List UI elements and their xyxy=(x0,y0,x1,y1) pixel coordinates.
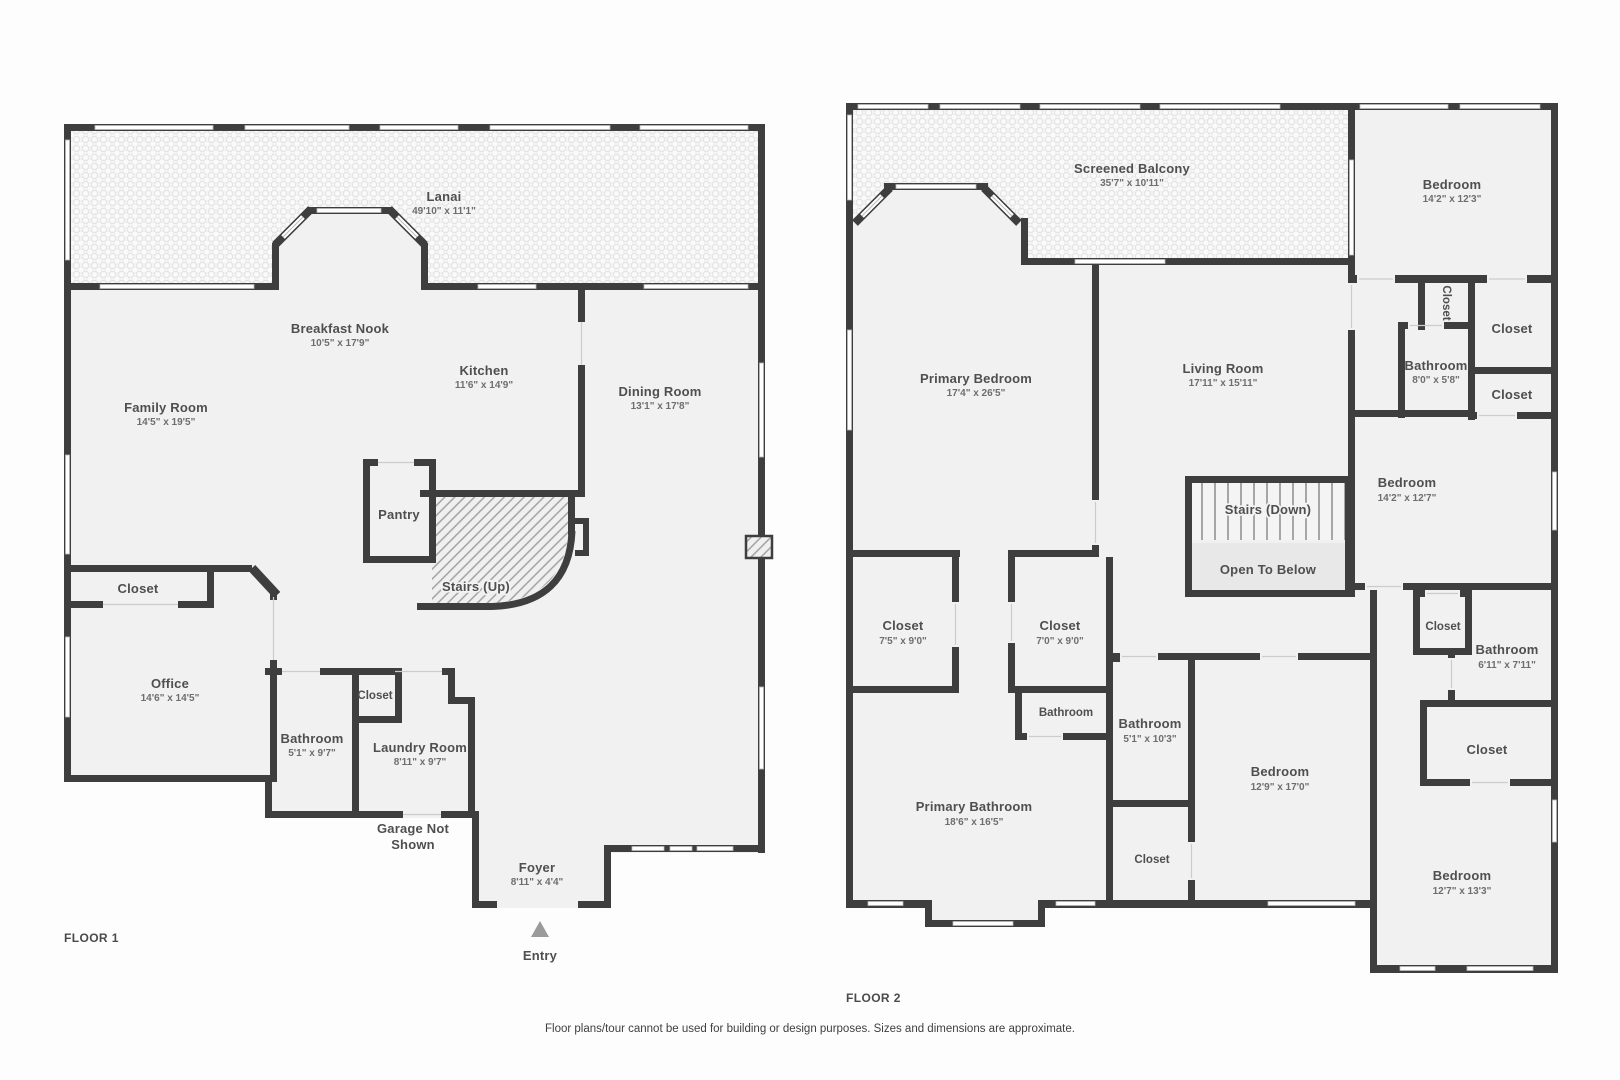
room-label-pantry: Pantry xyxy=(378,507,420,522)
room-label-primary-bedroom: Primary Bedroom xyxy=(920,371,1032,386)
room-dims-screened-balcony: 35'7" x 10'11" xyxy=(1100,178,1164,189)
room-label-bathroom1: Bathroom xyxy=(281,731,344,746)
garage-note-line1: Garage Not xyxy=(377,821,450,836)
room-dims-bedroom-tr: 14'2" x 12'3" xyxy=(1423,194,1482,205)
room-label-closet-lower-right: Closet xyxy=(1492,387,1533,402)
room-label-bedroom-bb: Bedroom xyxy=(1433,868,1491,883)
room-label-closet-large: Closet xyxy=(1467,742,1508,757)
room-label-primary-bathroom: Primary Bathroom xyxy=(916,799,1033,814)
room-label-closet-vertical: Closet xyxy=(1440,285,1452,320)
room-dims-kitchen: 11'6" x 14'9" xyxy=(455,380,513,391)
room-label-kitchen: Kitchen xyxy=(459,363,508,378)
room-label-closet-70: Closet xyxy=(1040,618,1081,633)
room-label-closet-75: Closet xyxy=(883,618,924,633)
garage-note-line2: Shown xyxy=(391,837,435,852)
disclaimer-text: Floor plans/tour cannot be used for buil… xyxy=(545,1023,1075,1035)
room-label-screened-balcony: Screened Balcony xyxy=(1074,161,1190,176)
room-label-bedroom-142: Bedroom xyxy=(1378,475,1436,490)
room-dims-bathroom1: 5'1" x 9'7" xyxy=(288,748,336,759)
room-label-bedroom-129: Bedroom xyxy=(1251,764,1309,779)
room-dims-foyer: 8'11" x 4'4" xyxy=(511,877,564,888)
room-dims-primary-bedroom: 17'4" x 26'5" xyxy=(947,388,1006,399)
room-dims-bedroom-bb: 12'7" x 13'3" xyxy=(1433,886,1492,897)
room-dims-closet-70: 7'0" x 9'0" xyxy=(1036,636,1084,647)
floor2-title: FLOOR 2 xyxy=(846,991,901,1005)
room-label-closet-mid: Closet xyxy=(1425,621,1460,633)
floorplan-page: Lanai 49'10" x 11'1" Breakfast Nook 10'5… xyxy=(0,0,1620,1080)
room-label-bedroom-tr: Bedroom xyxy=(1423,177,1481,192)
room-dims-closet-75: 7'5" x 9'0" xyxy=(879,636,927,647)
room-dims-laundry: 8'11" x 9'7" xyxy=(394,757,447,768)
room-label-bathroom-611: Bathroom xyxy=(1476,642,1539,657)
room-dims-bathroom-51: 5'1" x 10'3" xyxy=(1123,734,1176,745)
room-label-lanai: Lanai xyxy=(427,189,462,204)
room-dims-dining-room: 13'1" x 17'8" xyxy=(631,401,690,412)
room-label-foyer: Foyer xyxy=(519,860,555,875)
room-label-closet-family: Closet xyxy=(118,581,159,596)
floor1-title: FLOOR 1 xyxy=(64,931,119,945)
room-dims-primary-bathroom: 18'6" x 16'5" xyxy=(945,817,1004,828)
room-label-living-room2: Living Room xyxy=(1183,361,1264,376)
floor1-plan: Lanai 49'10" x 11'1" Breakfast Nook 10'5… xyxy=(64,124,772,963)
room-label-stairs-up: Stairs (Up) xyxy=(442,579,510,594)
room-dims-office: 14'6" x 14'5" xyxy=(141,693,200,704)
room-dims-bedroom-142: 14'2" x 12'7" xyxy=(1378,493,1437,504)
room-label-bathroom-small: Bathroom xyxy=(1039,707,1093,719)
floor2-plan: Screened Balcony 35'7" x 10'11" Bedroom … xyxy=(846,103,1558,1005)
room-dims-living-room2: 17'11" x 15'11" xyxy=(1189,378,1258,389)
room-label-bathroom-51: Bathroom xyxy=(1119,716,1182,731)
room-label-breakfast-nook: Breakfast Nook xyxy=(291,321,390,336)
fireplace xyxy=(746,536,772,558)
room-label-open-to-below: Open To Below xyxy=(1220,562,1317,577)
room-label-closet-laundry: Closet xyxy=(357,690,392,702)
room-dims-family-room: 14'5" x 19'5" xyxy=(137,417,196,428)
room-dims-breakfast-nook: 10'5" x 17'9" xyxy=(311,338,370,349)
room-label-office: Office xyxy=(151,676,189,691)
room-label-stairs-down: Stairs (Down) xyxy=(1225,502,1311,517)
room-label-dining-room: Dining Room xyxy=(618,384,701,399)
room-label-closet-hall: Closet xyxy=(1134,854,1169,866)
room-label-closet-upper-right: Closet xyxy=(1492,321,1533,336)
room-label-bathroom-80: Bathroom xyxy=(1405,358,1468,373)
room-label-laundry: Laundry Room xyxy=(373,740,467,755)
entry-arrow-icon xyxy=(531,921,549,937)
entry-label: Entry xyxy=(523,948,558,963)
room-dims-lanai: 49'10" x 11'1" xyxy=(412,206,476,217)
room-label-family-room: Family Room xyxy=(124,400,208,415)
room-dims-bathroom-80: 8'0" x 5'8" xyxy=(1412,375,1460,386)
floorplan-svg: Lanai 49'10" x 11'1" Breakfast Nook 10'5… xyxy=(0,0,1620,1080)
room-dims-bedroom-129: 12'9" x 17'0" xyxy=(1251,782,1310,793)
room-dims-bathroom-611: 6'11" x 7'11" xyxy=(1478,660,1536,671)
